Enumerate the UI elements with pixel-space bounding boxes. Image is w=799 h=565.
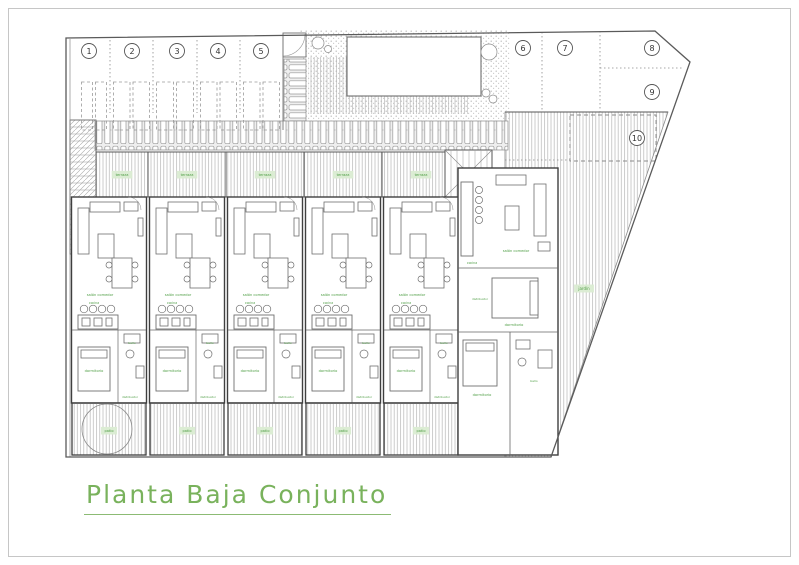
- garden-label-group: jardín: [574, 285, 594, 293]
- svg-text:salón comedor: salón comedor: [165, 293, 192, 297]
- svg-text:dormitorio: dormitorio: [505, 323, 524, 327]
- unit-4: terrazasalón comedorcocinadormitoriobaño…: [306, 171, 381, 455]
- svg-text:salón comedor: salón comedor: [321, 293, 348, 297]
- svg-text:dormitorio: dormitorio: [397, 369, 416, 373]
- svg-text:dormitorio: dormitorio: [85, 369, 104, 373]
- svg-text:terraza: terraza: [415, 173, 428, 177]
- svg-text:cocina: cocina: [323, 301, 333, 305]
- svg-text:distribuidor: distribuidor: [472, 297, 489, 301]
- svg-text:distribuidor: distribuidor: [356, 395, 373, 399]
- parking-space-number-4: 4: [211, 44, 226, 59]
- svg-text:1: 1: [86, 47, 91, 56]
- svg-text:cocina: cocina: [167, 301, 177, 305]
- swimming-pool: [347, 37, 481, 96]
- svg-text:cocina: cocina: [401, 301, 411, 305]
- svg-text:distribuidor: distribuidor: [122, 395, 139, 399]
- unit-3: terrazasalón comedorcocinadormitoriobaño…: [228, 171, 303, 455]
- svg-text:dormitorio: dormitorio: [473, 393, 492, 397]
- svg-text:dormitorio: dormitorio: [241, 369, 260, 373]
- svg-text:distribuidor: distribuidor: [434, 395, 451, 399]
- plant-circle: [312, 37, 324, 49]
- svg-text:terraza: terraza: [337, 173, 350, 177]
- svg-text:cocina: cocina: [89, 301, 99, 305]
- pool-shed: [283, 33, 306, 57]
- svg-text:patio: patio: [338, 429, 347, 433]
- svg-text:patio: patio: [416, 429, 425, 433]
- svg-text:8: 8: [649, 44, 654, 53]
- svg-text:terraza: terraza: [181, 173, 194, 177]
- svg-text:3: 3: [174, 47, 179, 56]
- svg-text:dormitorio: dormitorio: [163, 369, 182, 373]
- parking-space-number-2: 2: [125, 44, 140, 59]
- housing-units: terrazasalón comedorcocinadormitoriobaño…: [72, 171, 459, 455]
- parking-space-number-3: 3: [170, 44, 185, 59]
- svg-text:baño: baño: [284, 341, 292, 345]
- unit-2: terrazasalón comedorcocinadormitoriobaño…: [150, 171, 225, 455]
- svg-text:distribuidor: distribuidor: [200, 395, 217, 399]
- drawing-title: Planta Baja Conjunto: [84, 480, 391, 515]
- svg-text:patio: patio: [182, 429, 191, 433]
- parking-space-number-5: 5: [254, 44, 269, 59]
- unit-5: terrazasalón comedorcocinadormitoriobaño…: [384, 171, 459, 455]
- svg-text:distribuidor: distribuidor: [278, 395, 295, 399]
- parking-space-number-7: 7: [558, 41, 573, 56]
- svg-text:terraza: terraza: [116, 173, 129, 177]
- svg-text:6: 6: [520, 44, 525, 53]
- parking-space-number-10: 10: [630, 131, 645, 146]
- svg-text:baño: baño: [362, 341, 370, 345]
- svg-text:baño: baño: [440, 341, 448, 345]
- pool-area: [283, 30, 510, 125]
- svg-text:jardín: jardín: [577, 286, 590, 291]
- parking-space-number-1: 1: [82, 44, 97, 59]
- svg-text:salón comedor: salón comedor: [503, 249, 530, 253]
- svg-text:salón comedor: salón comedor: [243, 293, 270, 297]
- svg-text:patio: patio: [104, 429, 113, 433]
- svg-text:patio: patio: [260, 429, 269, 433]
- parking-space-number-9: 9: [645, 85, 660, 100]
- svg-text:4: 4: [215, 47, 220, 56]
- unit-1: terrazasalón comedorcocinadormitoriobaño…: [72, 171, 147, 455]
- large-unit: salón comedorcocinadormitoriodormitoriob…: [458, 168, 558, 455]
- svg-text:salón comedor: salón comedor: [87, 293, 114, 297]
- svg-text:cocina: cocina: [467, 261, 477, 265]
- pergola-walkway: [95, 121, 508, 150]
- svg-text:terraza: terraza: [259, 173, 272, 177]
- drawing-sheet: terrazasalón comedorcocinadormitoriobaño…: [0, 0, 799, 565]
- title-block: Planta Baja Conjunto: [84, 480, 391, 515]
- svg-text:10: 10: [632, 134, 642, 143]
- svg-text:cocina: cocina: [245, 301, 255, 305]
- svg-text:salón comedor: salón comedor: [399, 293, 426, 297]
- svg-text:baño: baño: [530, 379, 538, 383]
- svg-text:2: 2: [129, 47, 134, 56]
- svg-text:5: 5: [258, 47, 263, 56]
- parking-space-number-8: 8: [645, 41, 660, 56]
- svg-text:baño: baño: [128, 341, 136, 345]
- svg-text:dormitorio: dormitorio: [319, 369, 338, 373]
- parking-space-number-6: 6: [516, 41, 531, 56]
- svg-text:7: 7: [562, 44, 567, 53]
- svg-text:baño: baño: [206, 341, 214, 345]
- svg-text:9: 9: [649, 88, 654, 97]
- garden-steps: [284, 59, 306, 125]
